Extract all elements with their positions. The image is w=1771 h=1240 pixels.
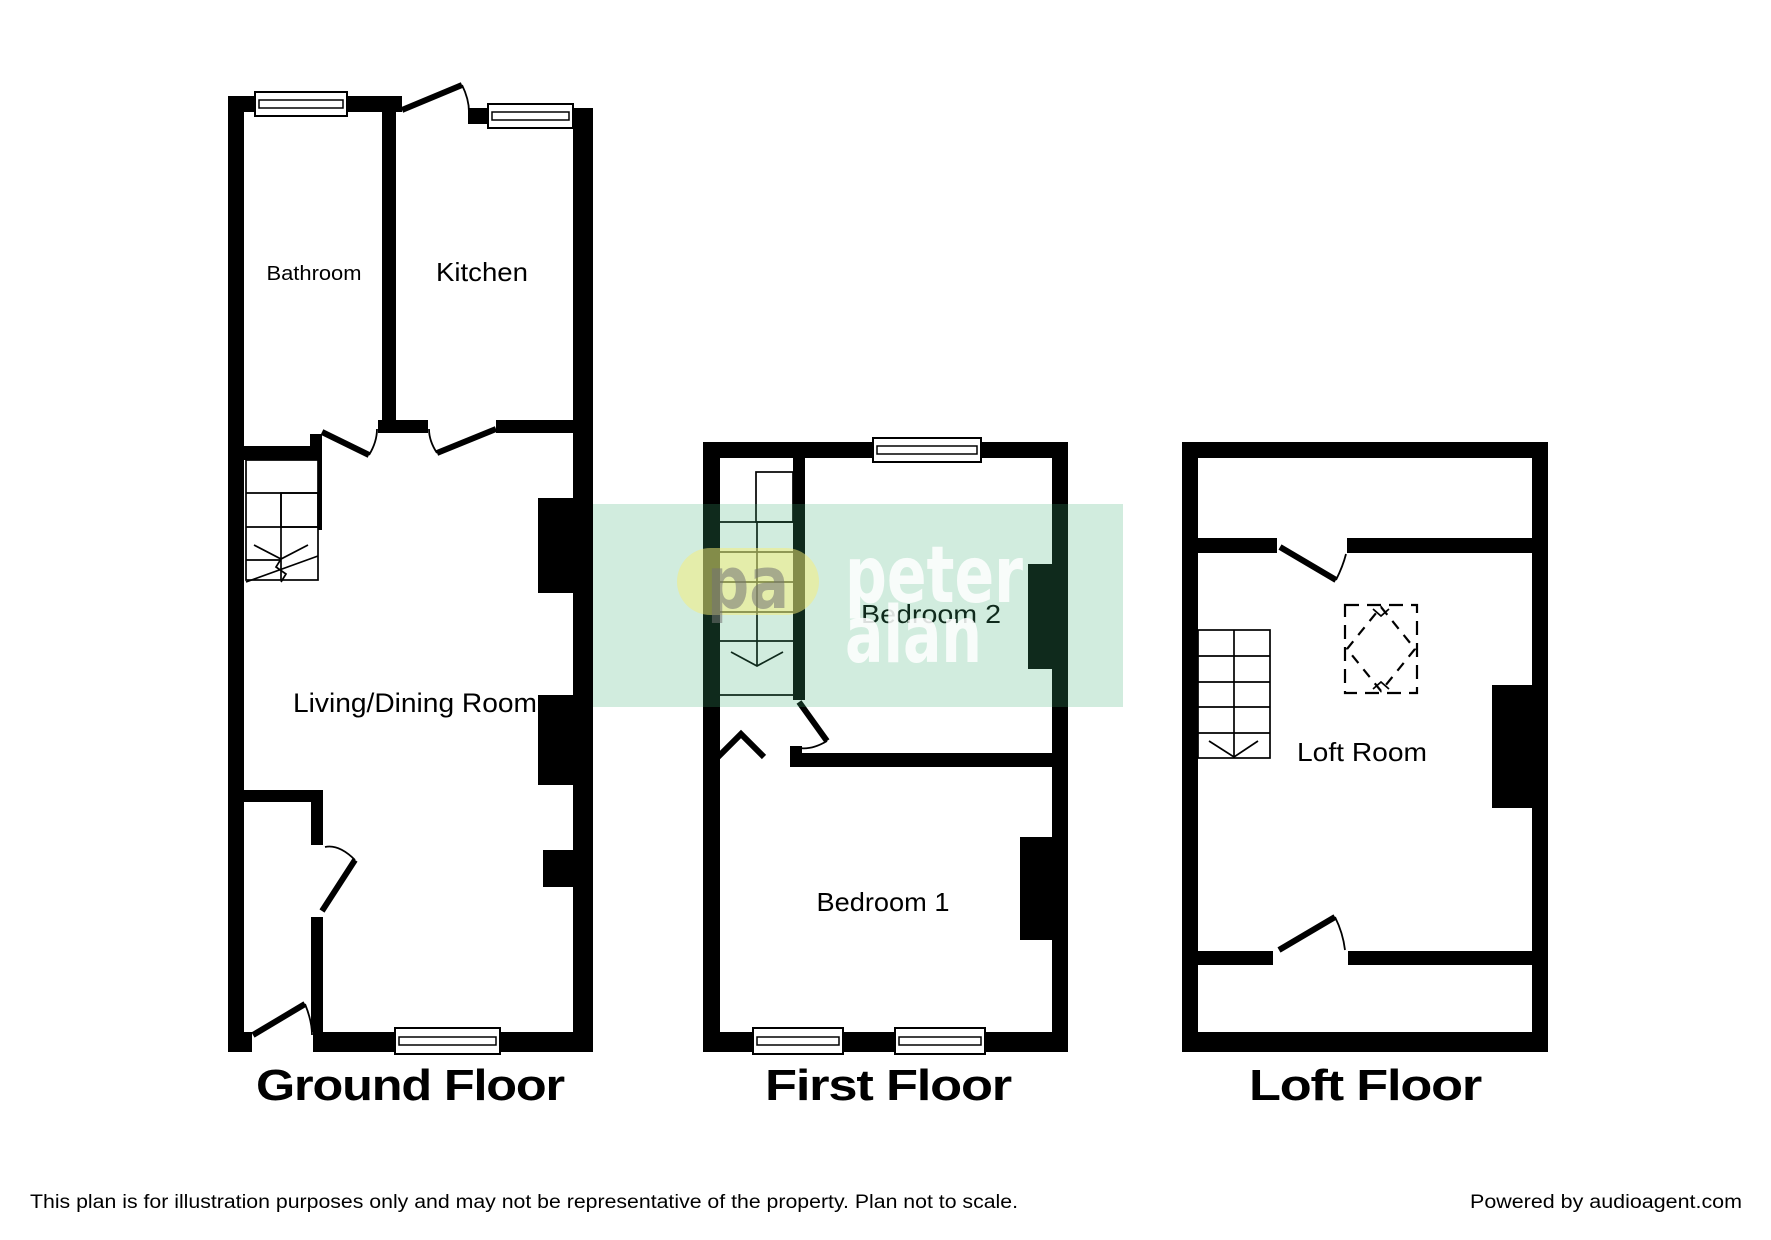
floorplan-canvas: Bathroom Kitchen Living/Dining Room — [0, 0, 1771, 1240]
bedroom2-window — [873, 438, 981, 462]
floor-label-loft: Loft Floor — [1249, 1061, 1482, 1110]
floor-label-first: First Floor — [765, 1061, 1012, 1110]
bathroom-door-swing — [322, 429, 377, 455]
floor-label-ground: Ground Floor — [256, 1061, 565, 1110]
bedroom1-window-left — [753, 1028, 843, 1054]
loft-landing-door-swing — [1280, 547, 1346, 580]
loft-staircase — [1198, 630, 1270, 758]
chimney-breast — [538, 498, 573, 887]
living-room-window — [395, 1028, 500, 1054]
room-label-living-dining: Living/Dining Room — [293, 688, 537, 718]
loft-floor-plan: Loft Room — [1182, 442, 1548, 1052]
room-label-bathroom: Bathroom — [267, 263, 362, 285]
ground-floor-plan: Bathroom Kitchen Living/Dining Room — [228, 85, 593, 1054]
kitchen-door-swing — [429, 429, 496, 453]
bedroom1-window-right — [895, 1028, 985, 1054]
floorplan-page: Bathroom Kitchen Living/Dining Room — [0, 0, 1771, 1240]
brand-word-alan: alan — [845, 591, 982, 681]
ground-staircase — [246, 460, 322, 582]
room-label-kitchen: Kitchen — [436, 257, 528, 287]
footer-disclaimer: This plan is for illustration purposes o… — [30, 1192, 1018, 1213]
loft-lower-door-swing — [1279, 917, 1345, 950]
hall-door-swing — [322, 847, 355, 911]
room-label-loft: Loft Room — [1297, 737, 1427, 767]
room-label-bedroom1: Bedroom 1 — [817, 887, 950, 917]
ground-interior-walls — [244, 112, 573, 1032]
kitchen-window — [488, 104, 573, 128]
kitchen-back-door-swing — [402, 85, 469, 112]
chimney-breast — [1492, 685, 1532, 808]
bathroom-window — [255, 92, 347, 116]
bedroom2-door-swing — [799, 702, 827, 748]
footer-credit: Powered by audioagent.com — [1470, 1192, 1742, 1213]
skylight-icon — [1345, 605, 1417, 693]
bedroom1-door-swing — [718, 734, 764, 757]
brand-logo-initials: pa — [707, 541, 789, 625]
watermark: pa peter alan — [593, 504, 1123, 707]
front-door-swing — [253, 1004, 312, 1035]
